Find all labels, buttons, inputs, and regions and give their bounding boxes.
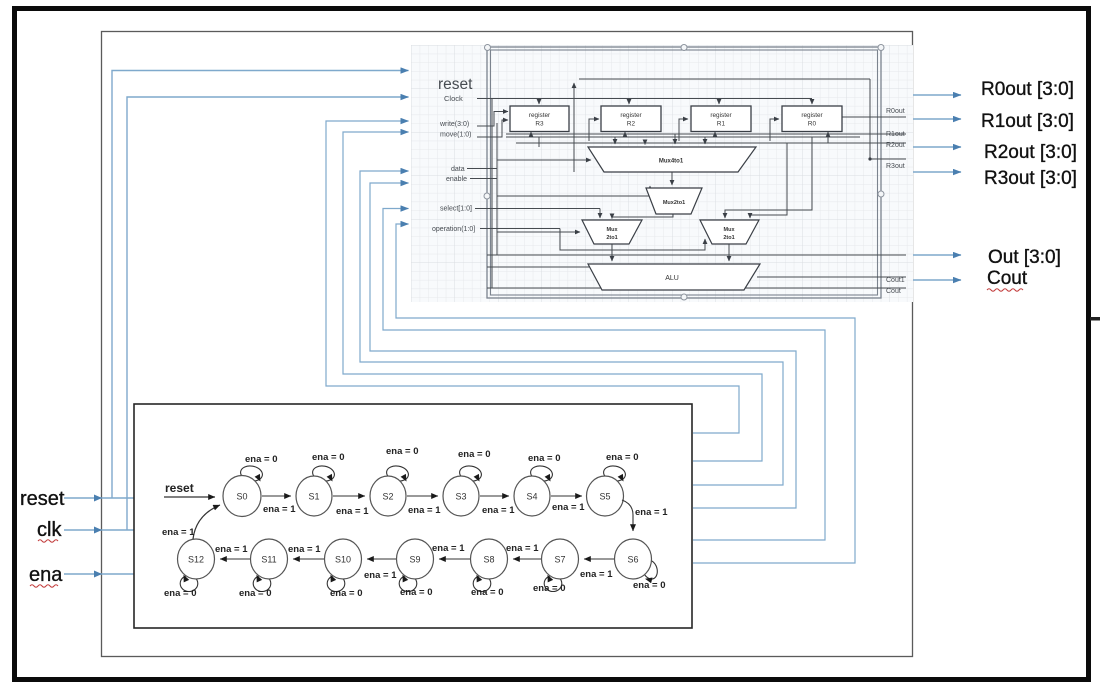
svg-text:reset: reset [165, 481, 194, 495]
svg-text:reset: reset [438, 76, 473, 93]
svg-text:ena = 1: ena = 1 [263, 504, 296, 515]
svg-text:reset: reset [20, 488, 65, 510]
svg-text:Cout: Cout [987, 268, 1028, 289]
svg-text:Mux: Mux [607, 227, 619, 233]
svg-text:clk: clk [37, 519, 62, 541]
svg-text:ena = 1: ena = 1 [288, 544, 321, 555]
svg-text:S4: S4 [526, 492, 537, 502]
svg-text:ena = 0: ena = 0 [239, 588, 271, 599]
svg-text:Out [3:0]: Out [3:0] [988, 247, 1061, 268]
svg-text:ena = 1: ena = 1 [635, 507, 668, 518]
svg-text:ena = 0: ena = 0 [458, 449, 490, 460]
svg-text:ena = 1: ena = 1 [432, 543, 465, 554]
svg-text:ena = 1: ena = 1 [506, 543, 539, 554]
svg-text:ena: ena [29, 564, 63, 586]
svg-text:R3: R3 [535, 121, 544, 128]
svg-text:S7: S7 [554, 555, 565, 565]
svg-text:Mux2to1: Mux2to1 [663, 200, 685, 206]
svg-text:S2: S2 [382, 492, 393, 502]
svg-text:R3out: R3out [886, 163, 905, 170]
svg-text:S12: S12 [188, 555, 204, 565]
svg-text:register: register [529, 112, 551, 119]
svg-text:register: register [620, 112, 642, 119]
svg-text:S8: S8 [483, 555, 494, 565]
svg-text:enable: enable [446, 176, 467, 183]
svg-text:S10: S10 [335, 555, 351, 565]
svg-text:register: register [801, 112, 823, 119]
svg-text:R2out [3:0]: R2out [3:0] [984, 142, 1077, 163]
svg-text:ena = 1: ena = 1 [336, 506, 369, 517]
svg-text:ena = 0: ena = 0 [245, 454, 277, 465]
svg-text:ena = 0: ena = 0 [400, 587, 432, 598]
svg-text:ena = 1: ena = 1 [162, 527, 195, 538]
svg-text:R1out [3:0]: R1out [3:0] [981, 111, 1074, 132]
svg-text:ena = 0: ena = 0 [528, 453, 560, 464]
svg-text:ena = 1: ena = 1 [580, 569, 613, 580]
svg-text:S0: S0 [236, 492, 247, 502]
svg-text:operation(1:0]: operation(1:0] [432, 226, 475, 233]
svg-text:S11: S11 [261, 555, 276, 565]
svg-text:R0out: R0out [886, 108, 905, 115]
svg-text:ena = 0: ena = 0 [386, 446, 418, 457]
svg-text:data: data [451, 166, 465, 173]
svg-text:ena = 0: ena = 0 [533, 583, 565, 594]
svg-text:ena = 1: ena = 1 [552, 502, 585, 513]
svg-text:move(1:0): move(1:0) [440, 132, 472, 139]
svg-text:S6: S6 [627, 555, 638, 565]
svg-text:S5: S5 [599, 492, 610, 502]
svg-text:2to1: 2to1 [606, 235, 617, 241]
svg-text:R0: R0 [808, 121, 817, 128]
svg-text:select[1:0]: select[1:0] [440, 206, 472, 213]
svg-text:Mux4to1: Mux4to1 [659, 159, 684, 165]
svg-text:ena = 1: ena = 1 [482, 505, 515, 516]
svg-text:ena = 0: ena = 0 [606, 452, 638, 463]
svg-text:register: register [710, 112, 732, 119]
svg-text:S3: S3 [455, 492, 466, 502]
svg-text:ena = 1: ena = 1 [364, 570, 397, 581]
svg-text:Cout: Cout [886, 288, 901, 295]
svg-text:write(3:0): write(3:0) [439, 121, 469, 128]
svg-text:R0out [3:0]: R0out [3:0] [981, 79, 1074, 100]
svg-text:ena = 0: ena = 0 [633, 580, 665, 591]
svg-text:ena = 0: ena = 0 [164, 588, 196, 599]
svg-text:ena = 1: ena = 1 [408, 505, 441, 516]
svg-text:ena = 1: ena = 1 [215, 544, 248, 555]
svg-text:S9: S9 [409, 555, 420, 565]
svg-text:ena = 0: ena = 0 [471, 587, 503, 598]
svg-text:ALU: ALU [665, 275, 679, 282]
svg-text:R2: R2 [627, 121, 636, 128]
svg-text:Cout1: Cout1 [886, 277, 905, 284]
svg-text:2to1: 2to1 [723, 235, 734, 241]
svg-text:ena = 0: ena = 0 [330, 588, 362, 599]
svg-text:S1: S1 [308, 492, 319, 502]
svg-text:Mux: Mux [724, 227, 736, 233]
svg-text:Clock: Clock [444, 94, 463, 103]
svg-text:R1: R1 [717, 121, 726, 128]
svg-text:ena = 0: ena = 0 [312, 452, 344, 463]
svg-text:R3out [3:0]: R3out [3:0] [984, 168, 1077, 189]
